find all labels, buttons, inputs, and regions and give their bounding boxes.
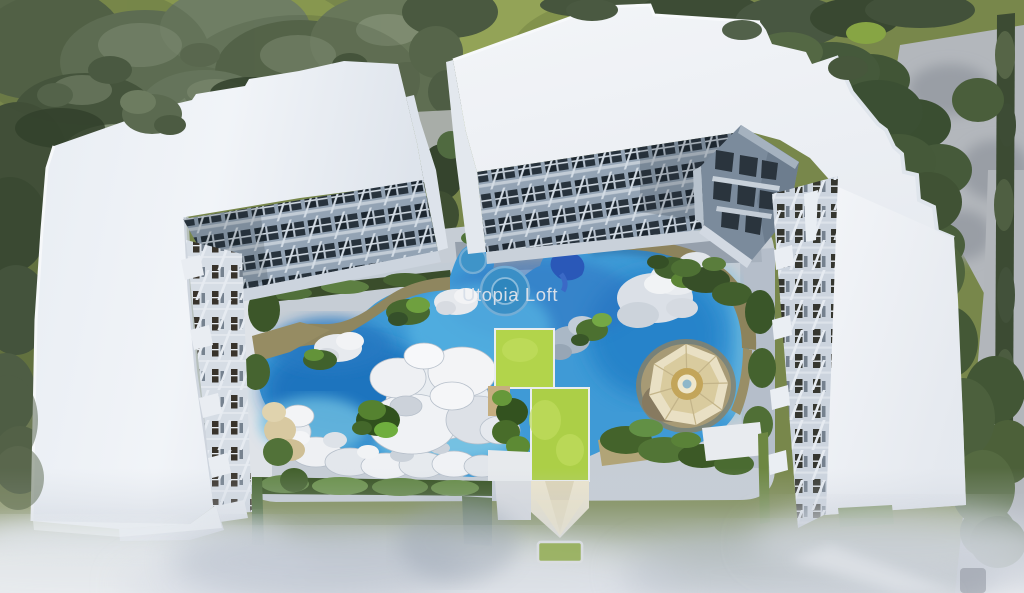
- svg-text:Utopia Loft: Utopia Loft: [462, 284, 558, 305]
